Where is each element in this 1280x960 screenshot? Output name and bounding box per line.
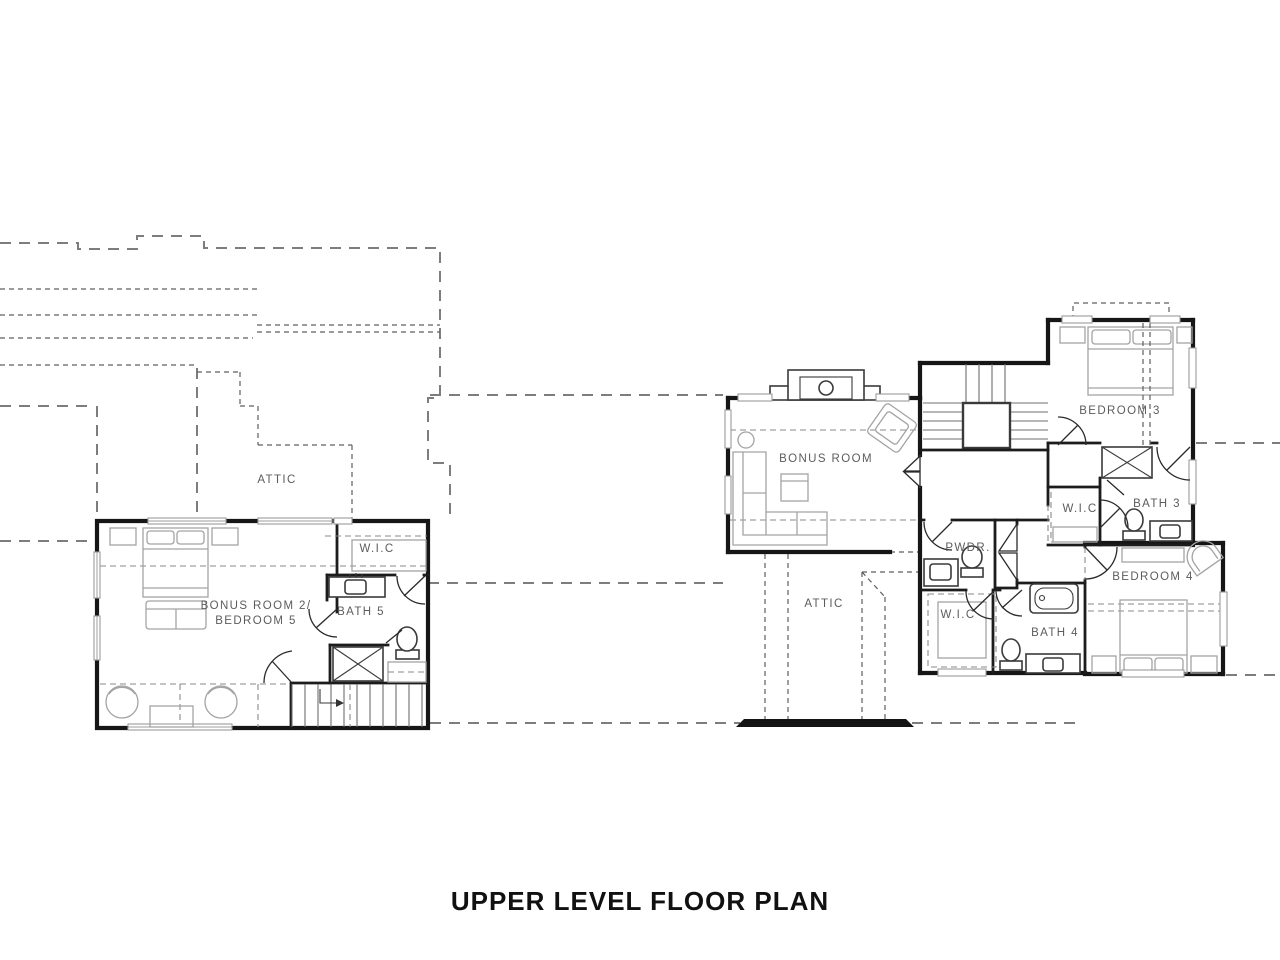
vanity-sink-3 [1150, 521, 1192, 541]
room-label-bath-5: BATH 5 [337, 606, 385, 618]
wic3-closet [1053, 527, 1097, 542]
room-label-bedroom-3: BEDROOM 3 [1079, 405, 1161, 417]
nightstand [1191, 656, 1217, 673]
room-label-wic-4: W.I.C [940, 609, 975, 621]
fireplace [770, 370, 880, 400]
room-label-attic-middle: ATTIC [804, 598, 843, 610]
bifold-closet-doors [999, 524, 1017, 580]
room-label-wic-3: W.I.C [1062, 503, 1097, 515]
stairwell-void [963, 403, 1010, 448]
shower-3 [1102, 447, 1152, 495]
wic3-closet-dash [1051, 492, 1098, 542]
room-label-powder: PWDR. [945, 542, 990, 554]
linen-cabinet [388, 662, 426, 682]
room-label-wic-5: W.I.C [359, 543, 394, 555]
stairs-left [292, 684, 422, 727]
roofline-dashes [0, 236, 450, 541]
middle-attic [736, 552, 918, 727]
bed-3 [1088, 327, 1173, 395]
vanity-sink-4 [1026, 654, 1080, 673]
chimney-base [736, 719, 914, 727]
armchair [866, 402, 918, 453]
nightstand [110, 528, 136, 545]
page-title: UPPER LEVEL FLOOR PLAN [451, 886, 829, 916]
room-label-attic-left: ATTIC [257, 474, 296, 486]
tub-4 [1030, 584, 1078, 613]
swivel-chair [205, 686, 237, 718]
stairs-right [923, 364, 1048, 450]
nightstand [1092, 656, 1116, 673]
toilet-4 [1000, 639, 1022, 670]
room-label-bonus-room-2-line1: BONUS ROOM 2/ [201, 600, 312, 612]
room-label-bath-4: BATH 4 [1031, 627, 1079, 639]
nightstand [1060, 327, 1085, 343]
room-label-bonus-room-2-line2: BEDROOM 5 [215, 615, 297, 627]
vanity-sink-5 [329, 573, 385, 597]
swivel-chair [106, 686, 138, 718]
floor-plan-page: ATTIC BONUS ROOM 2/ BEDROOM 5 W.I.C BATH… [0, 0, 1280, 960]
round-table [738, 432, 754, 448]
bed-5 [143, 528, 208, 597]
nightstand [1177, 327, 1192, 343]
nightstand [212, 528, 238, 545]
room-label-bath-3: BATH 3 [1133, 498, 1181, 510]
ottoman [781, 474, 808, 501]
room-label-bedroom-4: BEDROOM 4 [1112, 571, 1194, 583]
shower-5 [333, 630, 402, 681]
loveseat [146, 601, 206, 629]
right-wing [725, 303, 1227, 677]
room-label-bonus-room: BONUS ROOM [779, 453, 873, 465]
toilet-3 [1123, 509, 1145, 540]
stair-direction-arrow [336, 699, 344, 707]
floor-plan-drawing: ATTIC BONUS ROOM 2/ BEDROOM 5 W.I.C BATH… [0, 0, 1280, 960]
powder-sink [924, 559, 958, 586]
sectional-sofa [733, 452, 827, 545]
dresser [1122, 548, 1184, 562]
